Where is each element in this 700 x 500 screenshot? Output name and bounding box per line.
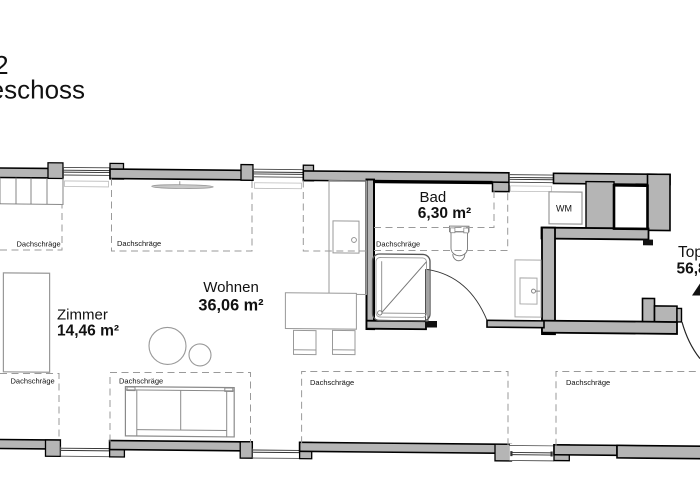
svg-text:WM: WM <box>556 204 572 214</box>
svg-text:Dachschräge: Dachschräge <box>310 378 354 387</box>
svg-text:36,06 m²: 36,06 m² <box>198 297 264 315</box>
svg-text:6,30 m²: 6,30 m² <box>418 205 471 222</box>
svg-text:Dachschräge: Dachschräge <box>566 378 610 387</box>
svg-text:Dachschräge: Dachschräge <box>376 240 420 249</box>
svg-text:Zimmer: Zimmer <box>57 307 108 324</box>
svg-text:Dachschräge: Dachschräge <box>11 377 55 386</box>
svg-text:Dachschräge: Dachschräge <box>119 377 163 386</box>
svg-text:Dachgeschoss: Dachgeschoss <box>0 75 85 105</box>
svg-text:Dachschräge: Dachschräge <box>17 240 61 249</box>
svg-text:Dachschräge: Dachschräge <box>117 239 161 248</box>
svg-text:Wohnen: Wohnen <box>203 279 259 296</box>
svg-text:Top 2: Top 2 <box>678 244 700 261</box>
svg-text:56,85 m²: 56,85 m² <box>677 261 700 278</box>
svg-text:14,46 m²: 14,46 m² <box>57 323 119 340</box>
svg-text:Bad: Bad <box>420 189 447 206</box>
